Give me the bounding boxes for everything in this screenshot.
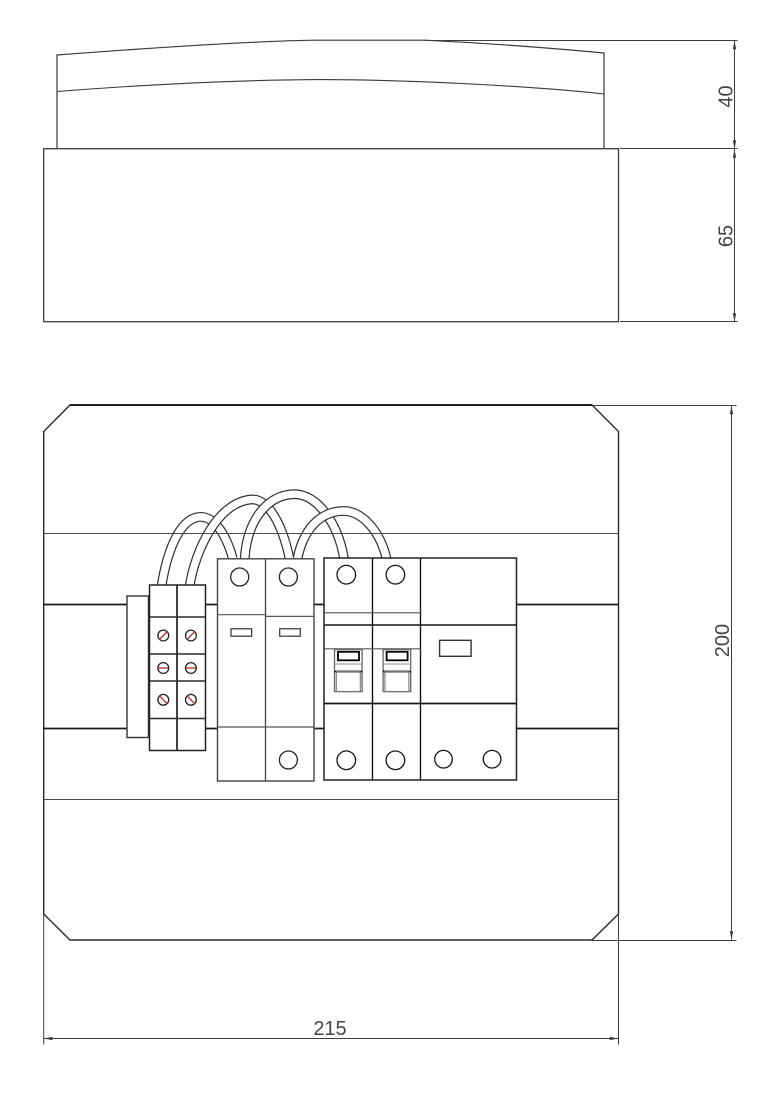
svg-text:40: 40 — [715, 85, 737, 107]
svg-text:200: 200 — [712, 624, 734, 657]
svg-text:65: 65 — [715, 225, 737, 247]
svg-text:215: 215 — [313, 1018, 346, 1040]
